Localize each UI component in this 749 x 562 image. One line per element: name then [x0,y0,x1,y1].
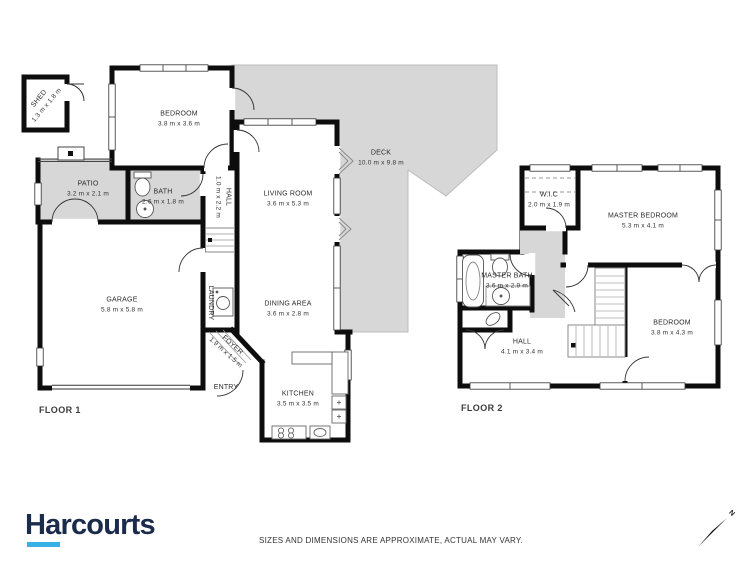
room-name: HALL [501,338,543,348]
room-dims: 2.6 m x 1.8 m [142,197,184,206]
room-dims: 10.0 m x 9.8 m [358,158,404,167]
room-label-master-bath: MASTER BATH 3.6 m x 2.9 m [481,272,532,291]
room-name: BEDROOM [651,319,693,329]
harcourts-logo: Harcourts [25,509,155,542]
floor1-stairs [206,228,235,252]
room-dims: 3.8 m x 4.3 m [651,328,693,337]
floorplan-canvas: SHED 1.3 m x 1.8 m BEDROOM 3.8 m x 3.6 m… [0,0,749,562]
room-dims: 3.8 m x 3.6 m [158,119,200,128]
room-name: MASTER BATH [481,272,532,282]
room-dims: 1.0 m x 2.2 m [214,176,223,218]
room-dims: 4.1 m x 3.4 m [501,347,543,356]
room-dims: 3.5 m x 3.5 m [277,399,319,408]
floor1-plan [24,65,497,440]
room-label-wic: W.I.C 2.0 m x 1.9 m [528,191,570,210]
floor1-label: FLOOR 1 [39,405,81,415]
room-name: BEDROOM [158,110,200,120]
floorplan-drawing [0,0,749,562]
room-label-garage: GARAGE 5.8 m x 5.8 m [101,296,143,315]
room-label-patio: PATIO 3.2 m x 2.1 m [67,180,109,199]
room-label-entry: ENTRY [214,383,239,393]
room-label-bedroom-f2: BEDROOM 3.8 m x 4.3 m [651,319,693,338]
room-name: LIVING ROOM [264,190,313,200]
room-name: KITCHEN [277,390,319,400]
logo-underline [27,542,60,547]
north-arrow [698,518,727,547]
room-dims: 3.2 m x 2.1 m [67,189,109,198]
room-dims: 2.0 m x 1.9 m [528,200,570,209]
room-name: DECK [358,149,404,159]
laundry-appliance [213,288,233,316]
room-name: GARAGE [101,296,143,306]
room-label-bath: BATH 2.6 m x 1.8 m [142,188,184,207]
room-name: LAUNDRY [205,286,215,321]
patio-details [38,147,112,162]
room-label-dining-area: DINING AREA 3.6 m x 2.8 m [264,300,311,319]
north-arrow-icon [698,518,727,547]
room-name: PATIO [67,180,109,190]
room-label-hall-f1: HALL 1.0 m x 2.2 m [214,176,233,218]
room-label-laundry: LAUNDRY [205,286,215,321]
room-dims: 5.8 m x 5.8 m [101,305,143,314]
room-name: MASTER BEDROOM [608,212,678,222]
room-label-kitchen: KITCHEN 3.5 m x 3.5 m [277,390,319,409]
room-label-living-room: LIVING ROOM 3.6 m x 5.3 m [264,190,313,209]
room-name: HALL [223,176,233,218]
room-dims: 3.6 m x 2.9 m [481,281,532,290]
room-name: W.I.C [528,191,570,201]
room-name: DINING AREA [264,300,311,310]
room-name: BATH [142,188,184,198]
room-name: ENTRY [214,383,239,393]
room-label-bedroom-f1: BEDROOM 3.8 m x 3.6 m [158,110,200,129]
room-label-deck: DECK 10.0 m x 9.8 m [358,149,404,168]
disclaimer-text: SIZES AND DIMENSIONS ARE APPROXIMATE, AC… [259,536,523,545]
harcourts-logo-text: Harcourts [25,509,155,542]
room-label-hall-f2: HALL 4.1 m x 3.4 m [501,338,543,357]
room-label-master-bedroom: MASTER BEDROOM 5.3 m x 4.1 m [608,212,678,231]
room-dims: 3.6 m x 2.8 m [264,309,311,318]
floor2-label: FLOOR 2 [461,403,503,413]
room-dims: 5.3 m x 4.1 m [608,221,678,230]
room-dims: 3.6 m x 5.3 m [264,199,313,208]
